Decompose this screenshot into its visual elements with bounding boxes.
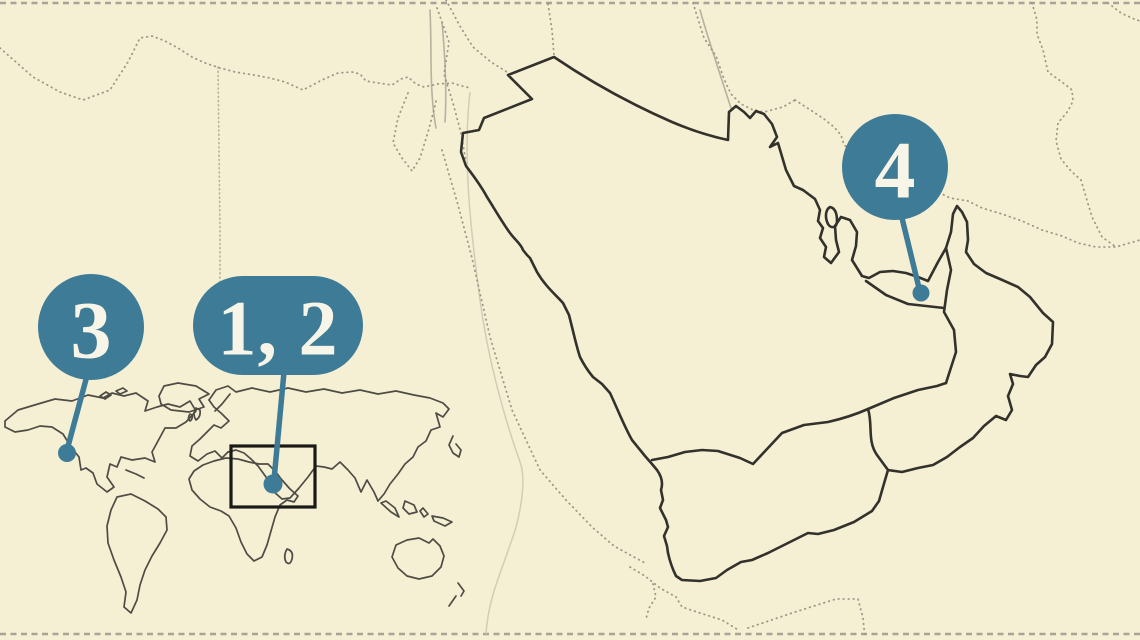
map-canvas: 3 1, 2 4: [0, 0, 1140, 640]
marker-1-2-point-dot: [264, 475, 283, 494]
marker-1-2-label: 1, 2: [218, 285, 339, 372]
marker-3-label: 3: [71, 285, 112, 376]
marker-4-point-dot: [913, 285, 930, 302]
marker-3-point-dot: [58, 444, 76, 462]
marker-4-label: 4: [875, 125, 916, 216]
